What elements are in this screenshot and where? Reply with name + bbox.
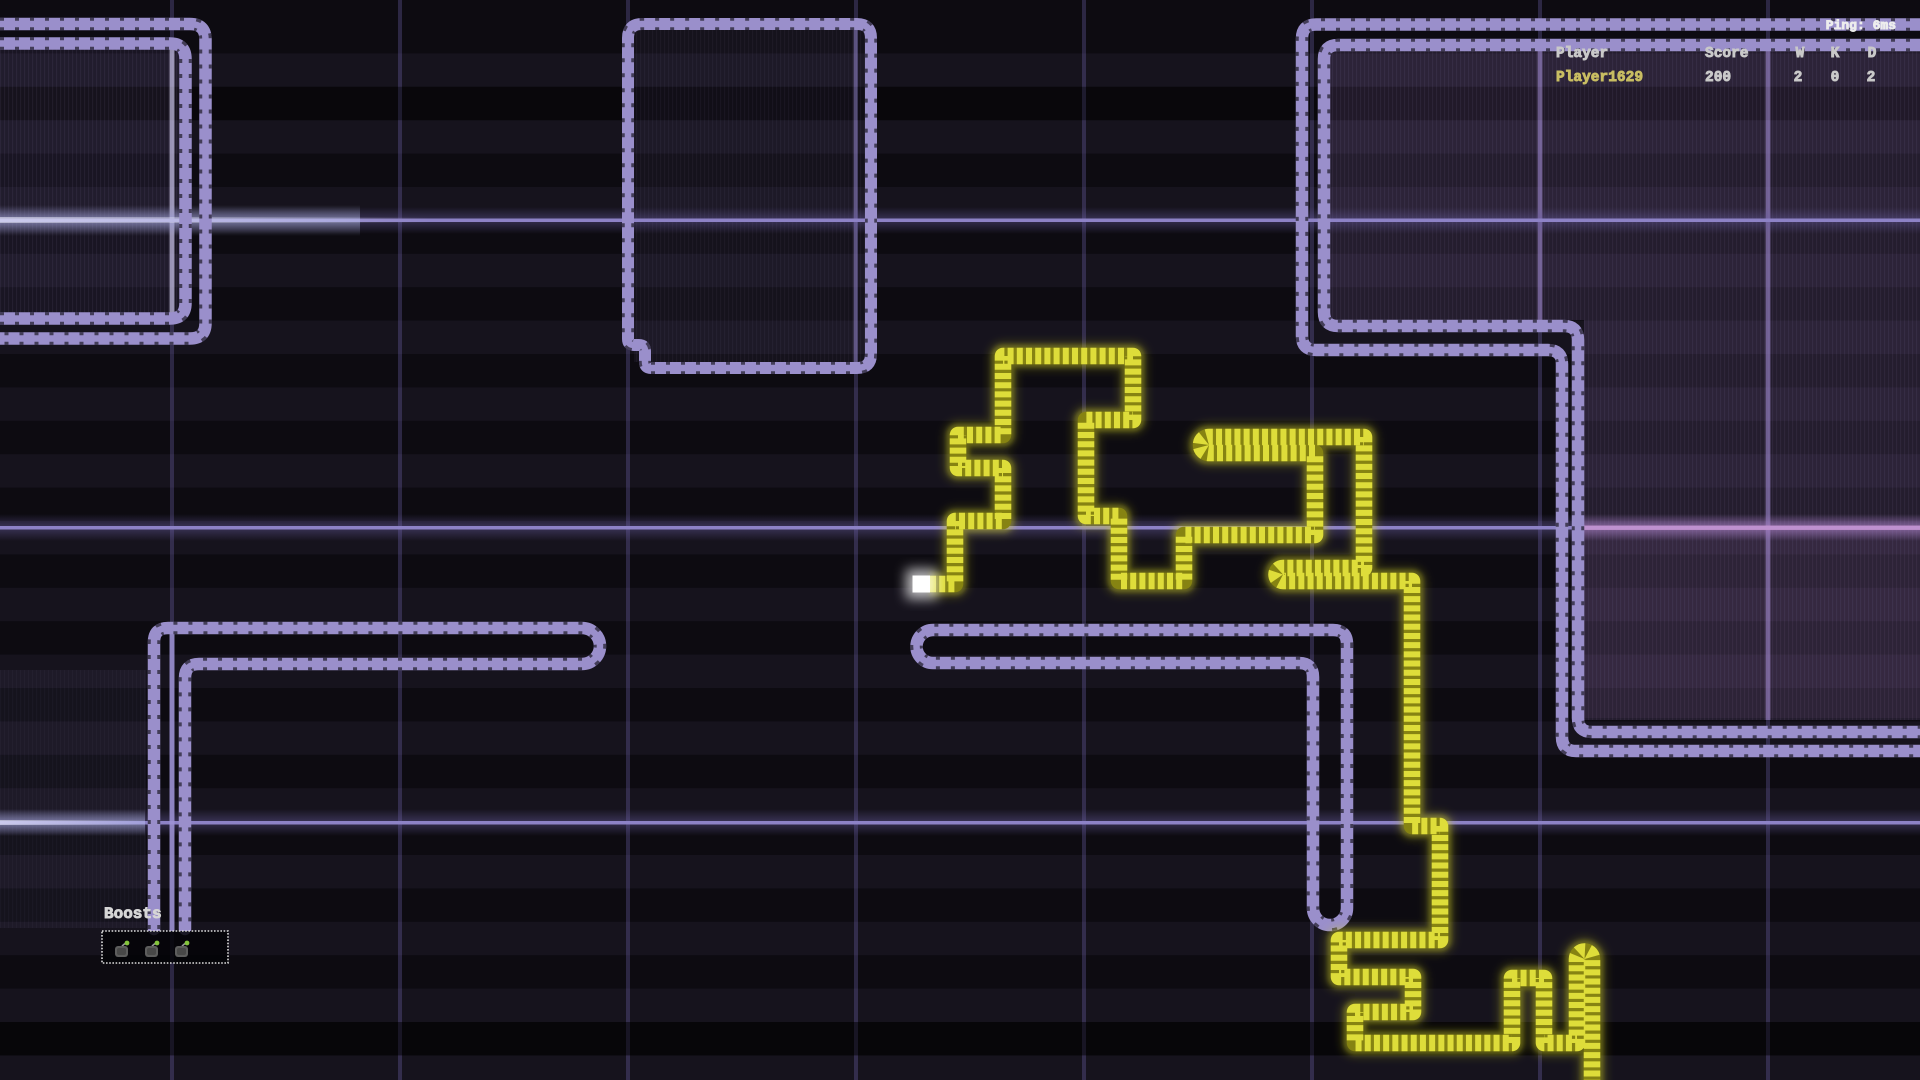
svg-text:2: 2 [1794, 70, 1803, 86]
svg-text:200: 200 [1705, 70, 1731, 86]
svg-text:0: 0 [1831, 70, 1840, 86]
svg-text:Score: Score [1705, 46, 1749, 62]
svg-text:D: D [1868, 46, 1877, 62]
svg-text:Ping: 6ms: Ping: 6ms [1826, 18, 1896, 33]
svg-text:W: W [1796, 46, 1805, 62]
svg-text:2: 2 [1867, 70, 1876, 86]
svg-text:Player1629: Player1629 [1556, 70, 1643, 86]
svg-text:Boosts: Boosts [104, 905, 162, 923]
svg-text:K: K [1831, 46, 1840, 62]
svg-text:Player: Player [1556, 46, 1608, 62]
